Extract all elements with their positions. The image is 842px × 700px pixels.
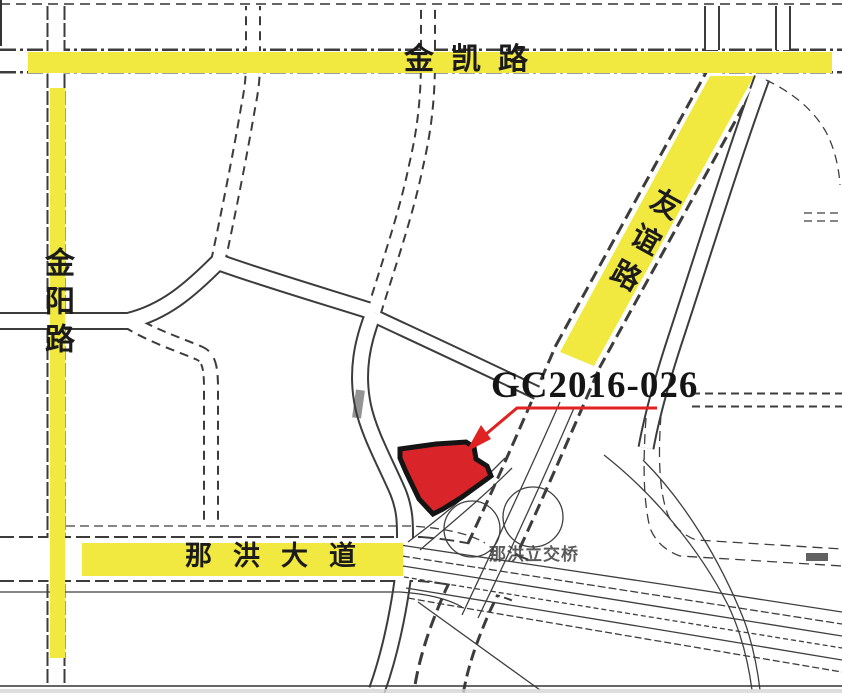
- bottom-edge-strip: [0, 689, 842, 693]
- interchange-label: 那洪立交桥: [489, 546, 579, 563]
- road-label-nahong: 那洪大道: [185, 543, 377, 570]
- road-label-jinyang: 金阳路: [41, 247, 71, 361]
- highlight-left-road: [50, 88, 65, 658]
- tiny-corner-label-blob: [806, 553, 828, 561]
- parcel-location-map: [0, 0, 842, 700]
- parcel-id-label: GC2016-026: [491, 367, 698, 404]
- map-canvas[interactable]: 金凯路 金阳路 友谊路 那洪大道 GC2016-026 那洪立交桥: [0, 0, 842, 700]
- road-label-jinkai: 金凯路: [404, 45, 545, 75]
